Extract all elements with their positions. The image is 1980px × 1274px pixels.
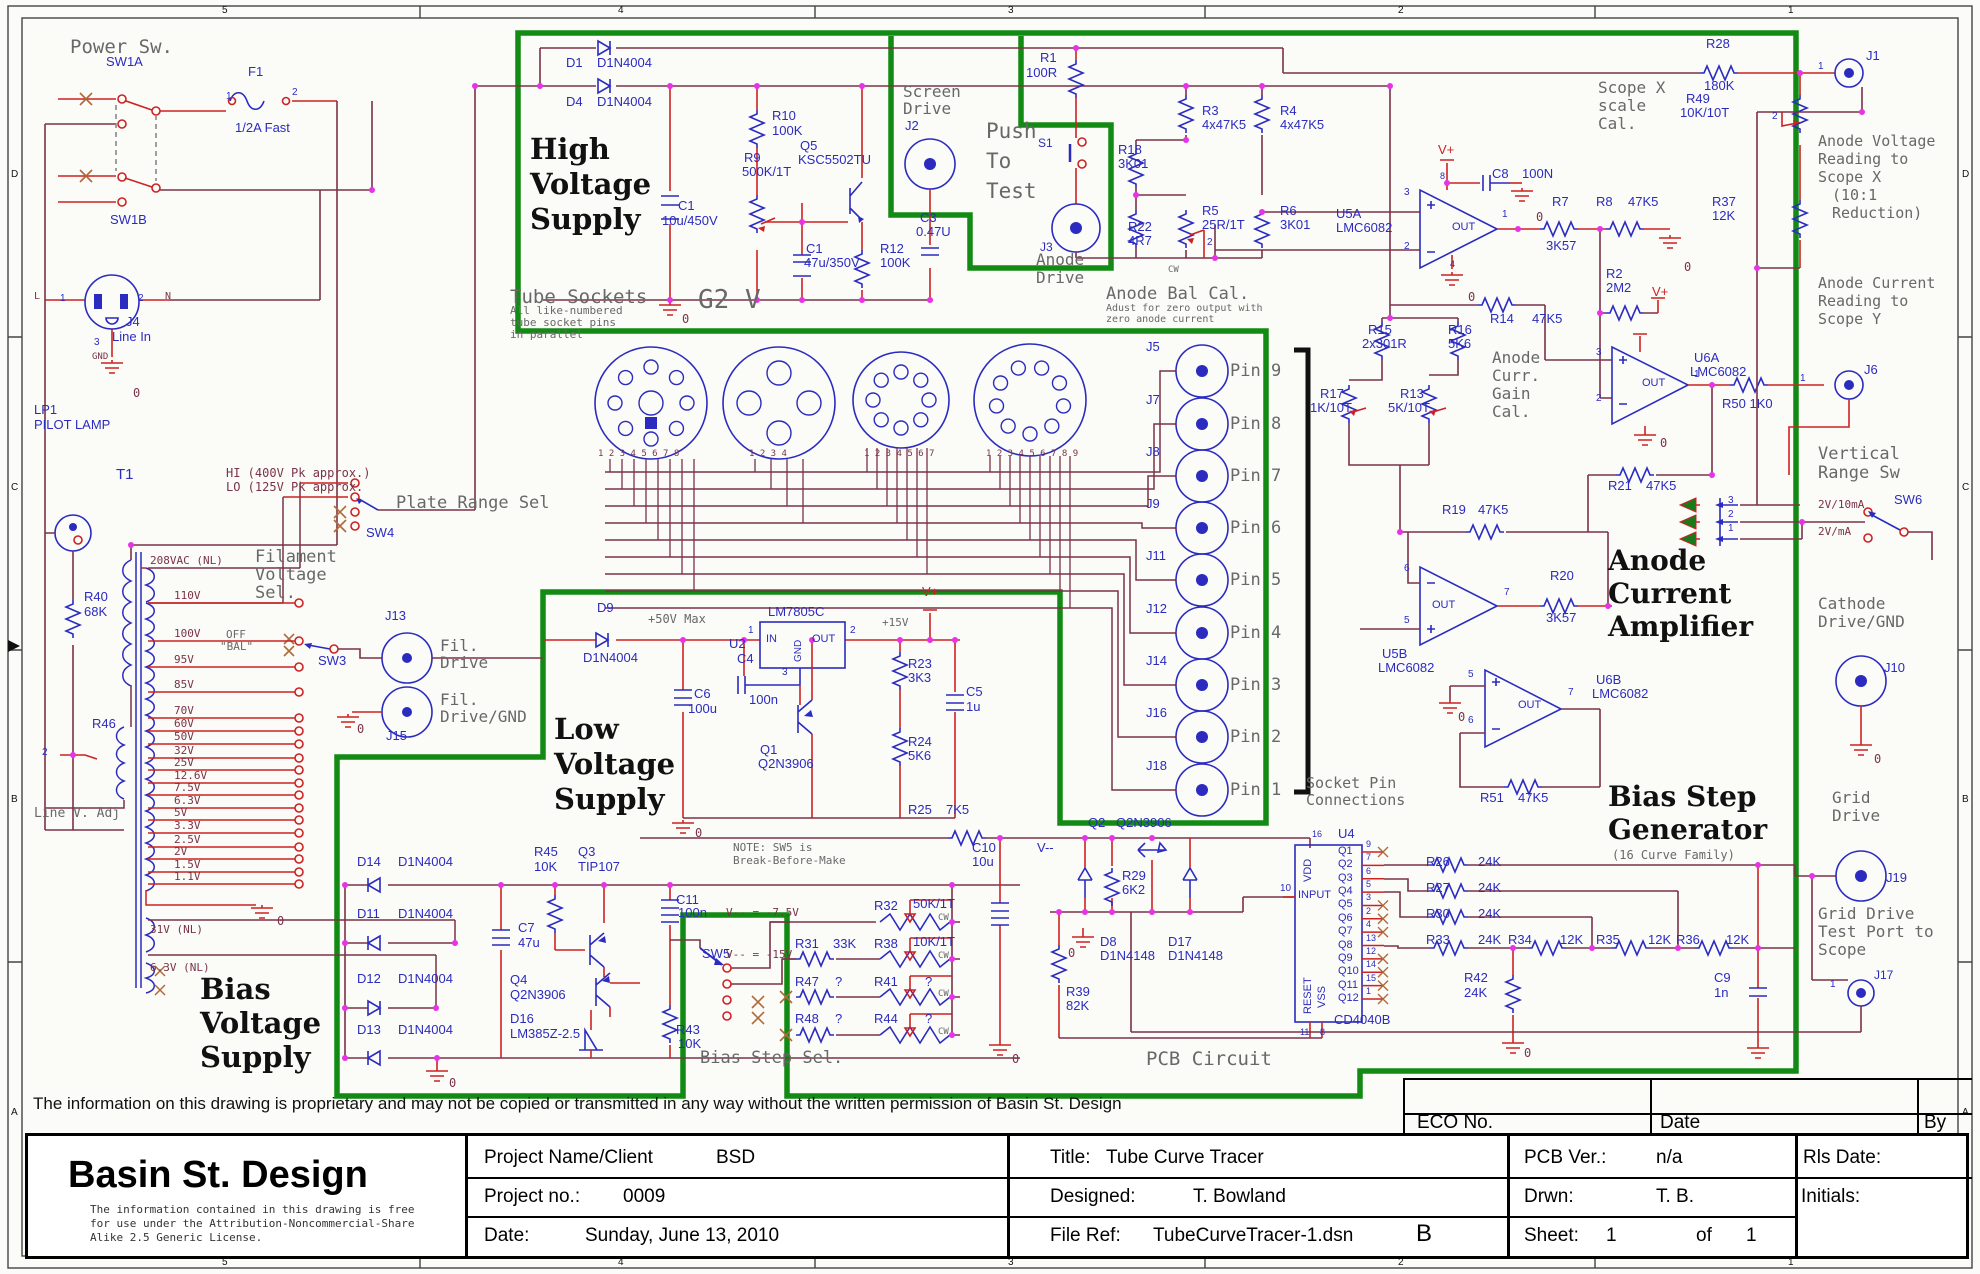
socket-key [645, 417, 657, 429]
license-line3: Alike 2.5 Generic License. [90, 1230, 262, 1247]
socket-9pin-pin-hole [1023, 427, 1037, 441]
anode-balance-network [1076, 86, 1420, 258]
scope-x-scale-cal [1283, 48, 1863, 505]
designed-value: T. Bowland [1193, 1186, 1286, 1208]
jack-pin-J16 [1196, 731, 1208, 743]
tap-contact-3.3V [295, 829, 303, 837]
proprietary-notice: The information on this drawing is propr… [33, 1096, 1122, 1112]
tap-contact-5V [295, 816, 303, 824]
socket-bus-J7 [605, 424, 1176, 489]
socket-4pin-pin-hole [767, 361, 791, 385]
designed-label: Designed: [1050, 1186, 1136, 1208]
jack-pin-J18 [1196, 784, 1208, 796]
socket-4pin-pin-hole [797, 391, 821, 415]
sheet-value: 1 [1606, 1225, 1617, 1247]
initials-label: Initials: [1801, 1186, 1860, 1208]
socket-7pin [853, 352, 949, 448]
tap-contact-100V [295, 637, 303, 645]
tap-contact-110V [295, 599, 303, 607]
vertical-range-switch-sw6 [1680, 498, 1932, 560]
title-block: Basin St. Design The information contain… [25, 1133, 1969, 1259]
socket-9pin-mini-pin-hole [680, 396, 694, 410]
ic-u4-cd4040b [1283, 845, 1362, 1038]
schematic-graphics [0, 0, 1980, 1274]
sheet-total-value: 1 [1746, 1225, 1757, 1247]
socket-bus-J18 [605, 608, 1176, 790]
project-name-label: Project Name/Client [484, 1147, 653, 1169]
tap-contact-6.3V [295, 804, 303, 812]
tap-contact-2.5V [295, 843, 303, 851]
tap-contact-85V [295, 688, 303, 696]
socket-9pin-pin-hole [1011, 361, 1025, 375]
jack-pin-J8 [1196, 470, 1208, 482]
socket-9pin-mini-pin-hole [669, 371, 683, 385]
jack-pin-J11 [1196, 574, 1208, 586]
pilot-lamp-circuit [45, 515, 124, 830]
title-label: Title: [1050, 1147, 1090, 1169]
socket-9pin-pin-hole [994, 376, 1008, 390]
socket-7pin-pin-hole [914, 373, 928, 387]
plate-range-switch-sw4 [334, 86, 475, 532]
eco-by-header: By [1924, 1112, 1946, 1134]
socket-bus-J16 [605, 591, 1176, 737]
tap-contact-2V [295, 855, 303, 863]
tap-contact-1.1V [295, 880, 303, 888]
socket-7pin-pin-hole [894, 421, 908, 435]
eco-no-header: ECO No. [1417, 1112, 1493, 1134]
opamp-u5b-u6b-stage [1360, 532, 1612, 794]
project-name-value: BSD [716, 1147, 755, 1169]
low-voltage-supply [543, 610, 964, 833]
drwn-value: T. B. [1656, 1186, 1694, 1208]
socket-4pin [723, 347, 835, 459]
tap-contact-25V [295, 766, 303, 774]
pcb-boundary-outline [337, 33, 1796, 1096]
socket-bus-J8 [605, 476, 1176, 506]
jack-pin-J14 [1196, 679, 1208, 691]
tap-contact-50V [295, 740, 303, 748]
socket-9pin-pin-hole [1001, 419, 1015, 433]
socket-9pin-pin-hole [1045, 419, 1059, 433]
socket-9pin-mini-pin-hole [619, 421, 633, 435]
tap-contact-7.5V [295, 791, 303, 799]
sheet-of-label: of [1696, 1225, 1712, 1247]
power-input-circuit [45, 93, 372, 830]
bias-ladder-network [1131, 656, 1886, 1058]
jack-pin-J7 [1196, 418, 1208, 430]
tap-contact-70V [295, 714, 303, 722]
high-voltage-supply [475, 41, 1390, 315]
title-value: Tube Curve Tracer [1106, 1147, 1264, 1169]
socket-9pin-mini-pin-hole [644, 360, 658, 374]
date-label: Date: [484, 1225, 529, 1247]
project-no-value: 0009 [623, 1186, 665, 1208]
push-to-test-anode-drive [1052, 48, 1100, 252]
socket-7pin-pin-hole [874, 373, 888, 387]
bias-step-drive [640, 831, 1322, 1055]
socket-9pin-pin-hole [1056, 399, 1070, 413]
socket-9pin-pin-hole [1052, 376, 1066, 390]
jack-pin-J9 [1196, 522, 1208, 534]
socket-9pin-mini-pin-hole [669, 421, 683, 435]
bias-step-select-sw5 [670, 885, 960, 1043]
socket-7pin-pin-hole [894, 365, 908, 379]
socket-7pin-pin-hole [866, 393, 880, 407]
socket-9pin [974, 344, 1086, 456]
tap-contact-32V [295, 754, 303, 762]
schematic-sheet: { "palette":{"wire_red":"#cc2222","wire_… [0, 0, 1980, 1274]
socket-7pin-pin-hole [874, 413, 888, 427]
drwn-label: Drwn: [1524, 1186, 1574, 1208]
socket-7pin-pin-hole [922, 393, 936, 407]
socket-pin-bracket [1294, 350, 1308, 792]
rev-value: B [1416, 1220, 1432, 1248]
file-ref-label: File Ref: [1050, 1225, 1121, 1247]
tap-contact-95V [295, 663, 303, 671]
socket-bus-J9 [605, 523, 1176, 528]
socket-9pin-mini-pin-hole [644, 432, 658, 446]
socket-9pin-mini-pin-hole [608, 396, 622, 410]
jack-pin-J5 [1196, 365, 1208, 377]
tap-contact-60V [295, 727, 303, 735]
socket-bus-J5 [605, 371, 1176, 472]
socket-9pin-mini-pin-hole [619, 371, 633, 385]
jack-pin-J12 [1196, 627, 1208, 639]
date-value: Sunday, June 13, 2010 [585, 1225, 779, 1247]
socket-4pin-pin-hole [767, 421, 791, 445]
tap-contact-12.6V [295, 779, 303, 787]
pcb-ver-value: n/a [1656, 1147, 1682, 1169]
socket-9pin-mini [595, 347, 707, 459]
socket-bus-J12 [605, 557, 1176, 633]
transformer-t1 [45, 483, 455, 1008]
file-ref-value: TubeCurveTracer-1.dsn [1153, 1225, 1353, 1247]
socket-9pin-pin-hole [990, 399, 1004, 413]
sheet-label: Sheet: [1524, 1225, 1579, 1247]
tap-contact-1.5V [295, 868, 303, 876]
socket-7pin-pin-hole [914, 413, 928, 427]
socket-4pin-pin-hole [737, 391, 761, 415]
project-no-label: Project no.: [484, 1186, 580, 1208]
rls-date-label: Rls Date: [1803, 1147, 1881, 1169]
pcb-ver-label: PCB Ver.: [1524, 1147, 1606, 1169]
filament-select-sw3 [284, 633, 543, 737]
socket-9pin-pin-hole [1035, 361, 1049, 375]
eco-date-header: Date [1660, 1112, 1700, 1134]
company-logo: Basin St. Design [68, 1154, 368, 1197]
